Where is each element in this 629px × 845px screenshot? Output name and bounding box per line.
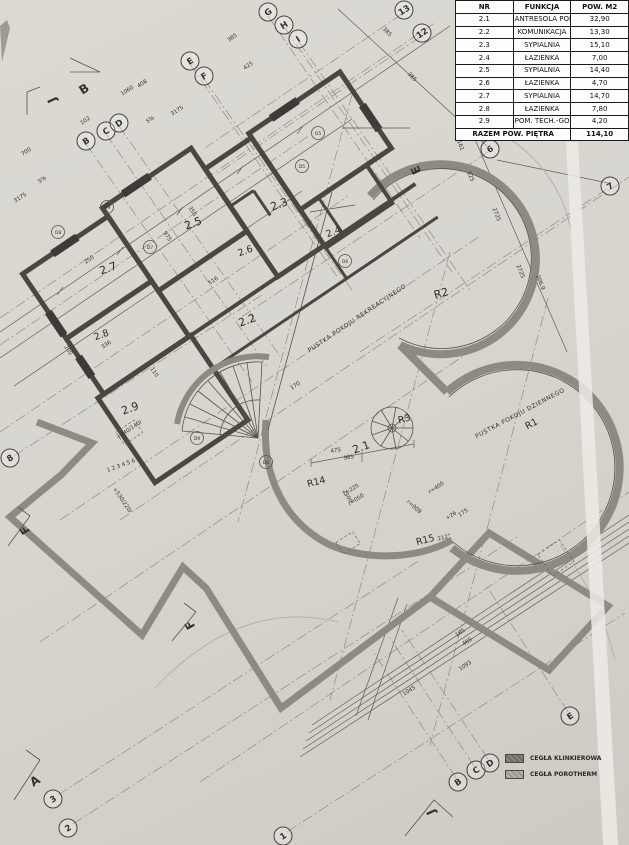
- grid-bubble: E: [561, 707, 579, 725]
- table-row: 2.8 ŁAZIENKA 7,80: [456, 103, 629, 116]
- grid-bubble: B: [77, 132, 95, 150]
- legend-label: CEGŁA KLINKIEROWA: [530, 755, 601, 762]
- dim-label: 385: [406, 71, 418, 83]
- grid-bubble: 3: [44, 790, 62, 808]
- window-icon: [75, 355, 95, 379]
- dim-label: 700: [20, 147, 32, 158]
- table-row: 2.7 SYPIALNIA 14,70: [456, 90, 629, 103]
- dim-label: 102: [79, 116, 91, 127]
- corridor-wall-a: [104, 184, 416, 394]
- porotherm-hatch-swatch: [505, 770, 524, 779]
- grid-bubble: E: [181, 52, 199, 70]
- grid-bubble: 12: [413, 24, 431, 42]
- total-value: 114,10: [571, 128, 629, 141]
- void-text: PUSTKA POKOJU REKREACYJNEGO: [307, 283, 408, 354]
- room-2-5-walls: [102, 148, 247, 291]
- room-label: 2.6: [237, 244, 255, 260]
- svg-text:O8: O8: [55, 230, 62, 236]
- grid-bubble: 2: [59, 819, 77, 837]
- window-icon: [269, 97, 300, 122]
- grid-bubble: 8: [1, 449, 19, 467]
- fixture-marker: O8: [52, 226, 65, 239]
- dim-label: 250: [83, 255, 95, 266]
- dim-label: 985: [343, 454, 355, 462]
- table-row: 2.6 ŁAZIENKA 4,70: [456, 77, 629, 90]
- grid-bubble: B: [449, 773, 467, 791]
- dim-label: 975: [161, 230, 172, 242]
- void-label: R1: [524, 416, 540, 432]
- room-label: 2.2: [237, 311, 258, 329]
- fixture-marker: D9: [191, 432, 204, 445]
- grid-bubble: D: [481, 754, 499, 772]
- legend-label: CEGŁA POROTHERM: [530, 771, 597, 778]
- section-letter-f: F: [182, 618, 198, 632]
- table-total-row: RAZEM POW. PIĘTRA 114,10: [456, 128, 629, 141]
- section-letter-b: B: [76, 81, 91, 98]
- svg-text:D9: D9: [194, 436, 200, 442]
- table-row: 2.5 SYPIALNIA 14,40: [456, 64, 629, 77]
- svg-text:O6: O6: [342, 259, 349, 265]
- window-icon: [45, 310, 67, 338]
- dim-label: r=008: [405, 499, 422, 515]
- stair-run-numbers: 1 2 3 4 5 6 7: [106, 456, 141, 474]
- svg-text:D6: D6: [263, 460, 269, 466]
- dim-label: 1060: [120, 85, 135, 98]
- dim-label: 408: [136, 79, 148, 90]
- table-row: 2.4 ŁAZIENKA 7,00: [456, 52, 629, 65]
- dim-label: 170: [289, 381, 301, 392]
- dim-label: 5%: [37, 175, 48, 185]
- grid-bubble: 7: [601, 177, 619, 195]
- fixture-marker: O6: [339, 255, 352, 268]
- curved-wall-r2: [370, 164, 536, 354]
- klinkier-hatch-swatch: [505, 754, 524, 763]
- fan-stair-outer-wall: [177, 356, 269, 424]
- room-label: 2.7: [98, 259, 119, 277]
- partition-b: [230, 191, 253, 207]
- dim-label: r=400: [428, 481, 446, 496]
- dim-label: 1045: [402, 685, 417, 698]
- room-2-7-walls: [23, 216, 152, 338]
- section-markers: B J A F F E J: [8, 58, 453, 836]
- dim-label: 3175: [170, 105, 185, 118]
- room-label: 2.9: [120, 399, 141, 417]
- section-triangle: [70, 58, 100, 72]
- table-row: 2.9 POM. TECH.-GOSPODARCZE 4,20: [456, 115, 629, 128]
- dim-label: 161: [455, 140, 464, 152]
- dim-label: 3175: [13, 192, 28, 205]
- grid-bubble: G: [259, 3, 277, 21]
- table-header-row: NR FUNKCJA POW. M2: [456, 1, 629, 14]
- radius-label: R14: [306, 475, 327, 490]
- dim-label: 2725: [515, 264, 526, 280]
- grid-bubble: I: [289, 30, 307, 48]
- dim-label: 425: [242, 61, 254, 72]
- table-row: 2.3 SYPIALNIA 15,10: [456, 39, 629, 52]
- dim-label: 475: [330, 447, 342, 455]
- legend-item: CEGŁA POROTHERM: [505, 770, 601, 779]
- level-label: +530/220/: [111, 487, 132, 515]
- dim-label: 385: [381, 26, 393, 38]
- svg-text:D5: D5: [299, 164, 305, 170]
- col-header-funkcja: FUNKCJA: [513, 1, 571, 14]
- dim-label: 5%: [145, 115, 156, 125]
- legend-item: CEGŁA KLINKIEROWA: [505, 754, 601, 763]
- dim-label: 175: [457, 508, 469, 519]
- dim-label: 1093: [458, 660, 473, 673]
- section-letter-j: J: [424, 807, 439, 818]
- stair-label: R3: [397, 412, 412, 426]
- fixture-marker: D5: [296, 160, 309, 173]
- dim-label: 336: [100, 340, 112, 351]
- scanned-floor-plan-page: B C D E F G H I 13 12 6 7 8 3 2 1 B C D …: [0, 0, 629, 845]
- total-label: RAZEM POW. PIĘTRA: [456, 128, 571, 141]
- fixture-markers: O8 O9 D7 O5 D5 O6 D9 D6: [52, 127, 352, 469]
- grid-bubble: 1: [274, 827, 292, 845]
- grid-bubble: D: [110, 114, 128, 132]
- table-row: 2.2 KOMUNIKACJA 13,30: [456, 26, 629, 39]
- svg-text:O9: O9: [104, 205, 111, 211]
- table-row: 2.1 ANTRESOLA POK. DZIENNEGO 32,90: [456, 13, 629, 26]
- grid-bubble: 13: [395, 1, 413, 19]
- col-header-nr: NR: [456, 1, 514, 14]
- dim-label: 516: [207, 276, 219, 287]
- grid-bubble: F: [195, 67, 213, 85]
- col-header-pow: POW. M2: [571, 1, 629, 14]
- fan-stair: [177, 356, 269, 438]
- dim-label: +26: [445, 510, 458, 522]
- room-label: 2.1: [351, 438, 372, 456]
- grid-bubble: H: [275, 16, 293, 34]
- svg-text:D7: D7: [147, 245, 153, 251]
- dim-label: 385: [226, 33, 238, 44]
- room-label: 2.3: [269, 195, 290, 213]
- terrace-zigzag-wall: [10, 422, 430, 708]
- scan-fold-stripe: [566, 142, 618, 845]
- materials-legend: CEGŁA KLINKIEROWA CEGŁA POROTHERM: [505, 754, 601, 786]
- fixture-marker: D7: [144, 241, 157, 254]
- grid-bubble: 6: [481, 140, 499, 158]
- partition-c: [253, 191, 270, 216]
- void-text: PUSTKA POKOJU DZIENNEGO: [474, 387, 566, 440]
- svg-text:O5: O5: [315, 131, 322, 137]
- scan-smudge: [0, 20, 10, 62]
- room-label: 2.5: [183, 214, 204, 232]
- area-table: NR FUNKCJA POW. M2 2.1 ANTRESOLA POK. DZ…: [455, 0, 629, 141]
- fixture-marker: O5: [312, 127, 325, 140]
- section-letter-j: J: [45, 95, 60, 106]
- dim-label: 2725: [491, 207, 502, 223]
- dim-label: 110: [148, 366, 159, 378]
- walls: [10, 164, 620, 708]
- section-letter-a: A: [27, 772, 43, 789]
